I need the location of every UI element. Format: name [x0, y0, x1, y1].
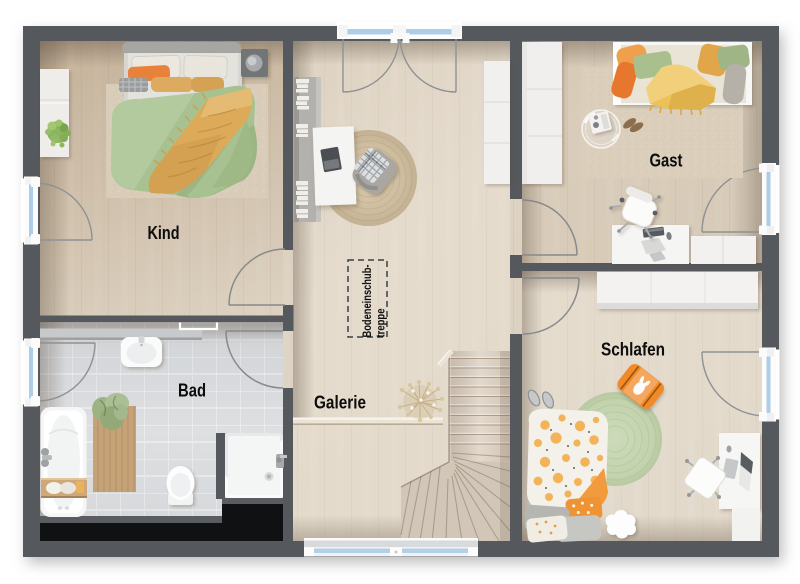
svg-text:Galerie: Galerie [314, 393, 366, 413]
svg-text:treppe: treppe [374, 308, 388, 337]
svg-text:Bodeneinschub-: Bodeneinschub- [360, 265, 374, 338]
svg-text:Schlafen: Schlafen [601, 340, 665, 360]
svg-text:Gast: Gast [650, 151, 683, 171]
svg-text:Kind: Kind [148, 223, 180, 243]
svg-text:Bad: Bad [178, 381, 206, 401]
